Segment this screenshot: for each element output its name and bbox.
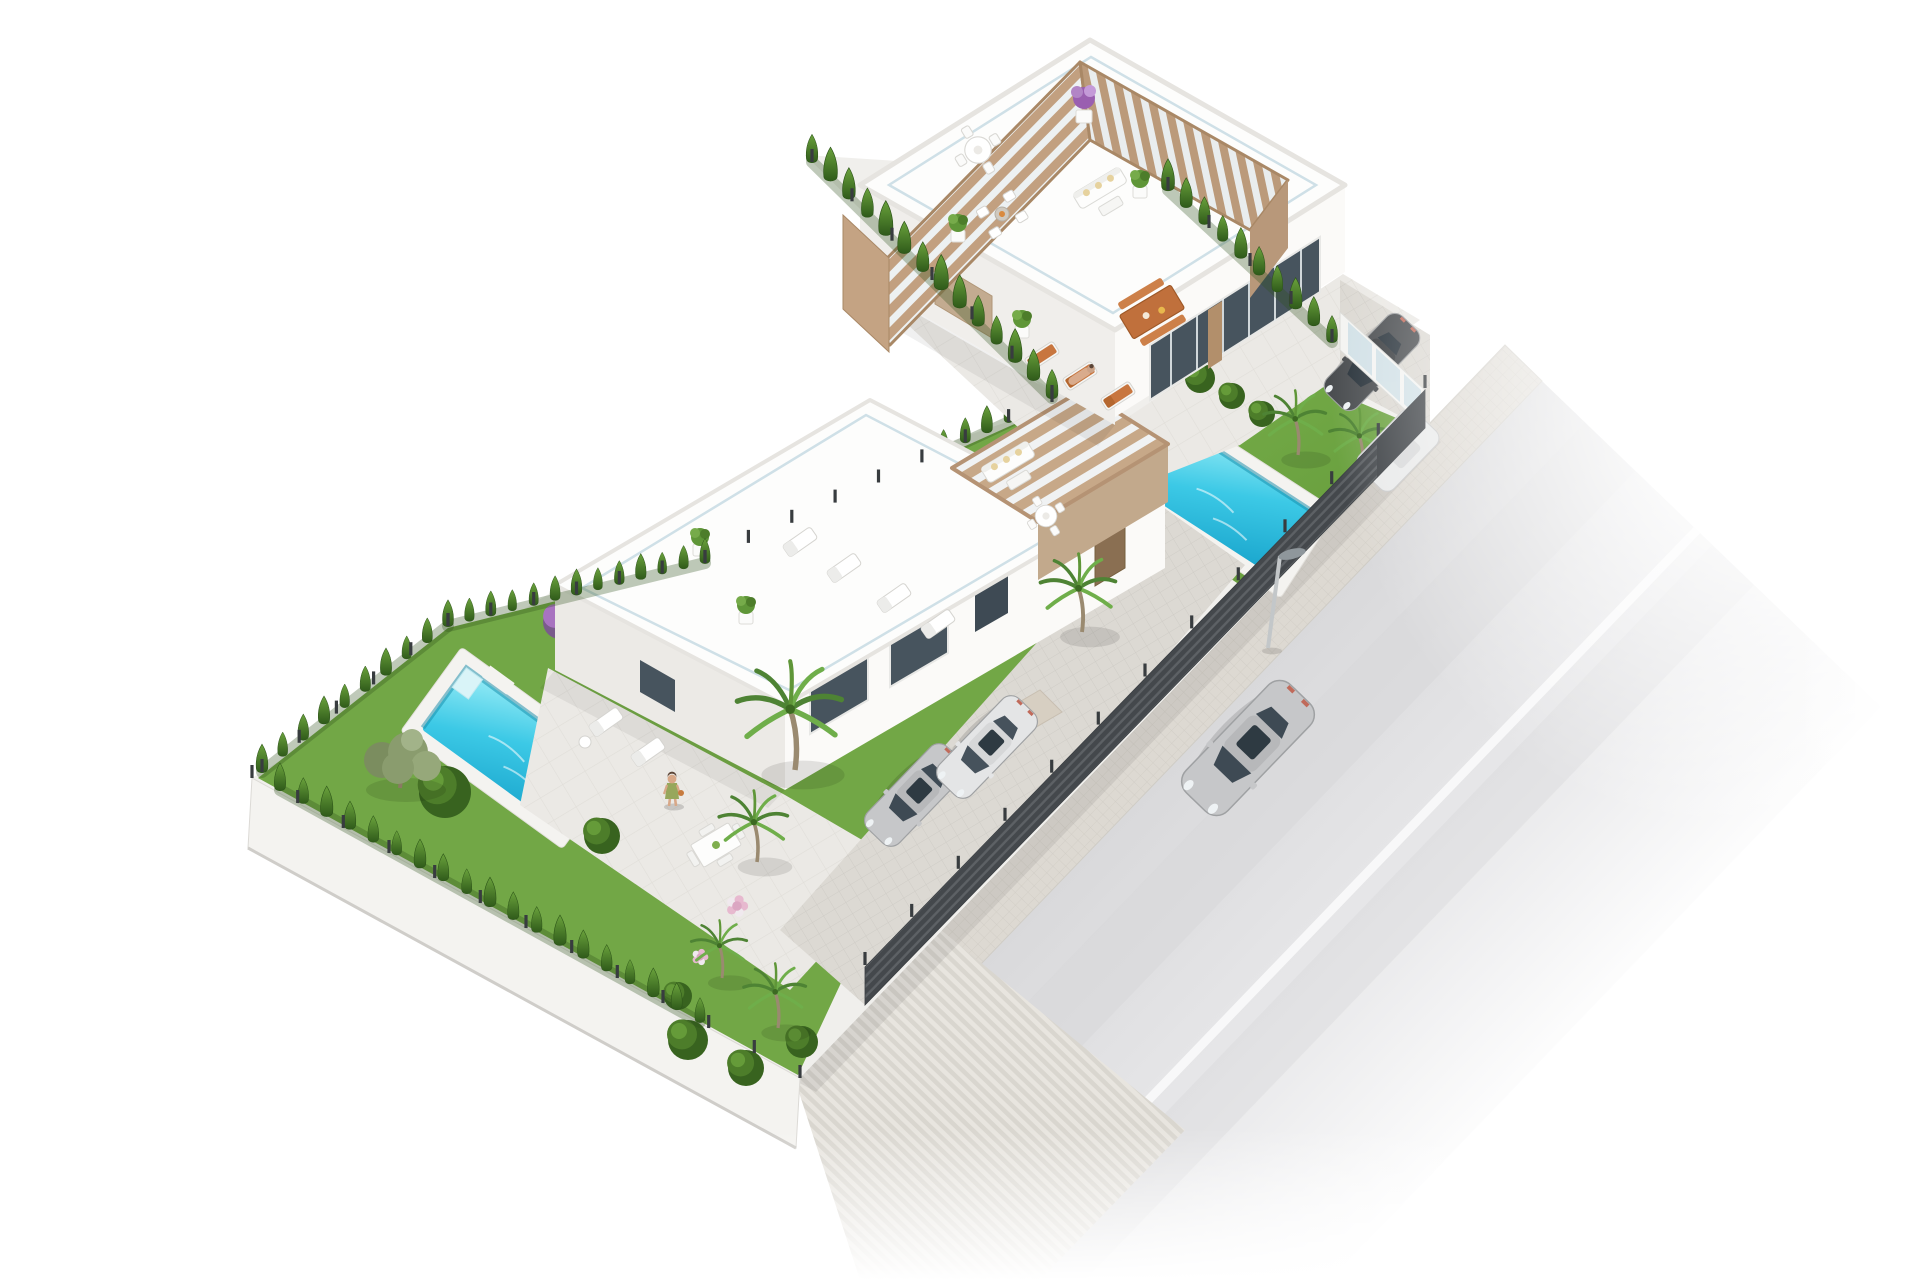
fence-post: [850, 188, 853, 201]
garden-bush: [587, 821, 601, 835]
flower-bed: [732, 901, 742, 911]
palm-shadow: [708, 975, 752, 990]
fence-post: [920, 449, 923, 462]
fence-post: [1007, 409, 1010, 422]
fence-post: [489, 603, 492, 616]
fence-post: [1143, 664, 1146, 677]
fence-post: [1190, 615, 1193, 628]
palm-shadow: [761, 1024, 810, 1041]
cypress-tree: [340, 684, 350, 708]
fence-post: [260, 759, 263, 772]
fence-post: [1003, 808, 1006, 821]
fence-post: [342, 815, 345, 828]
render-canvas: Photorealistic aerial render of a reside…: [0, 0, 1920, 1280]
fence-post: [798, 1065, 801, 1078]
fence-post: [433, 865, 436, 878]
cypress-tree: [465, 598, 475, 621]
fade-bottom: [0, 1128, 1920, 1280]
palm-shadow: [1281, 451, 1330, 468]
fence-post: [707, 1015, 710, 1028]
fade-right: [1790, 0, 1920, 1280]
cypress-tree: [422, 618, 432, 643]
potted-plant: [736, 596, 756, 624]
fence-post: [1207, 215, 1210, 228]
cypress-tree: [550, 576, 560, 601]
fence-post: [964, 429, 967, 442]
garden-bush: [1251, 403, 1261, 413]
fence-post: [250, 765, 253, 778]
fence-post: [616, 965, 619, 978]
fence-post: [703, 550, 706, 563]
fence-post: [1050, 389, 1053, 402]
fence-post: [957, 856, 960, 869]
cypress-tree: [380, 648, 391, 675]
potted-plant: [948, 214, 968, 242]
fence-post: [446, 613, 449, 626]
fence-post: [753, 1040, 756, 1053]
wood-pillar: [1208, 301, 1222, 369]
palm-shadow: [738, 858, 793, 877]
fence-post: [1283, 519, 1286, 532]
fence-post: [1097, 712, 1100, 725]
fence-post: [1289, 291, 1292, 304]
fence-post: [298, 730, 301, 743]
fence-post: [970, 306, 973, 319]
cypress-tree: [508, 590, 517, 611]
fence-post: [747, 530, 750, 543]
fence-post: [575, 582, 578, 595]
fence-post: [863, 952, 866, 965]
fence-post: [618, 571, 621, 584]
cypress-tree: [318, 696, 329, 724]
cypress-tree: [360, 666, 370, 692]
fence-post: [532, 592, 535, 605]
fence-post: [296, 790, 299, 803]
side-table: [579, 736, 591, 748]
fence-post: [372, 671, 375, 684]
fence-post: [409, 642, 412, 655]
fence-post: [1050, 760, 1053, 773]
garden-bush: [671, 1023, 687, 1039]
fence-post: [1010, 346, 1013, 359]
fence-post: [877, 470, 880, 483]
fence-post: [1166, 177, 1169, 190]
fence-post: [930, 267, 933, 280]
fence-post: [479, 890, 482, 903]
fence-post: [570, 940, 573, 953]
fence-post: [661, 561, 664, 574]
palm-shadow: [761, 761, 844, 790]
fence-post: [524, 915, 527, 928]
fence-post: [810, 149, 813, 162]
cypress-tree: [824, 147, 838, 181]
cypress-tree: [981, 406, 992, 433]
cypress-tree: [278, 732, 288, 756]
fence-post: [910, 904, 913, 917]
fence-post: [890, 228, 893, 241]
fence-post: [1237, 567, 1240, 580]
fence-post: [661, 990, 664, 1003]
garden-bush: [731, 1053, 745, 1067]
fence-post: [335, 701, 338, 714]
bag: [678, 790, 684, 796]
scene-render: Photorealistic aerial render of a reside…: [0, 0, 1920, 1280]
potted-plant: [1130, 170, 1150, 198]
fence-post: [1248, 253, 1251, 266]
fence-post: [790, 510, 793, 523]
palm-shadow: [1060, 627, 1120, 648]
fence-post: [387, 840, 390, 853]
fence-post: [1330, 471, 1333, 484]
garden-bush: [1221, 385, 1231, 395]
fence-post: [834, 490, 837, 503]
